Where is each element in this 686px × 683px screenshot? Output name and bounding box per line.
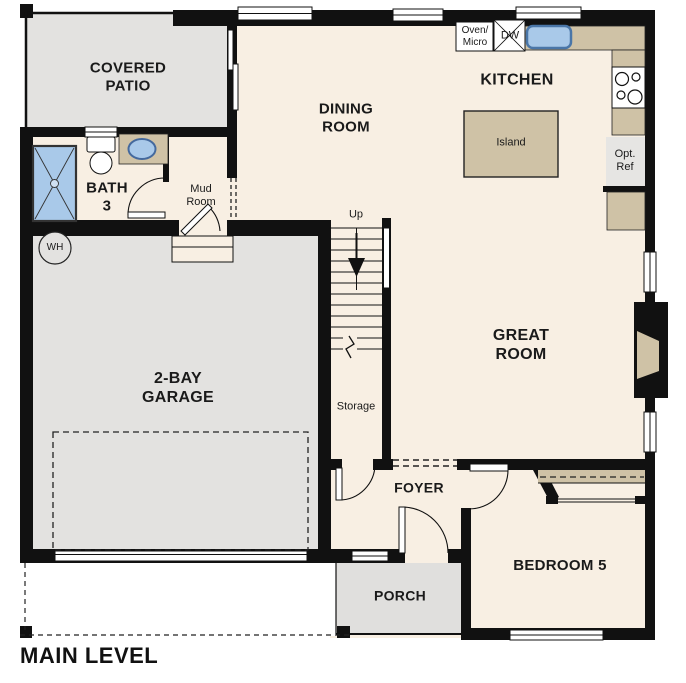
kitchen-sink-icon — [527, 26, 571, 48]
plan-title: MAIN LEVEL — [20, 643, 158, 669]
vanity-sink-icon — [119, 134, 168, 164]
patio-slider-panel — [233, 64, 238, 110]
garage-door — [55, 551, 307, 561]
floor-plan: COVERED PATIO DINING ROOM KITCHEN GREAT … — [0, 0, 686, 683]
dishwasher-icon — [494, 20, 525, 51]
oven-micro-box — [456, 22, 493, 51]
garage-step — [172, 236, 233, 262]
fireplace-icon — [634, 302, 668, 398]
shower-icon — [33, 146, 76, 221]
island — [464, 111, 558, 177]
water-heater-icon — [39, 232, 71, 264]
patio-slider-panel — [228, 30, 233, 70]
floorplan-linework — [0, 0, 686, 683]
optional-ref-box — [606, 137, 645, 186]
cooktop-icon — [612, 67, 645, 108]
floor-fills — [25, 12, 645, 638]
